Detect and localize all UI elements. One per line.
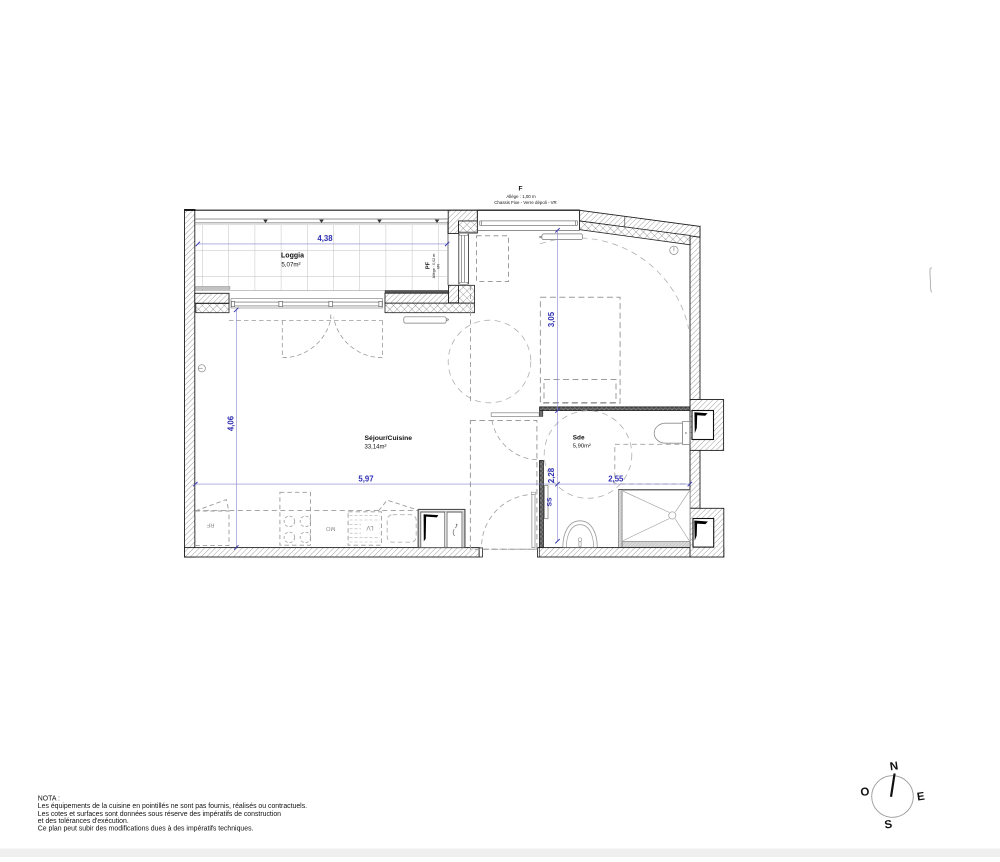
svg-text:3,05: 3,05 xyxy=(547,311,556,327)
svg-text:Sde: Sde xyxy=(573,435,585,442)
svg-text:VR: VR xyxy=(436,264,440,269)
svg-text:2,28: 2,28 xyxy=(547,467,556,483)
svg-text:MO: MO xyxy=(326,525,336,531)
svg-text:Allège : 1,00 m: Allège : 1,00 m xyxy=(506,194,536,199)
svg-text:Ce plan peut subir des modific: Ce plan peut subir des modifications due… xyxy=(38,826,254,833)
svg-text:RF: RF xyxy=(206,522,214,528)
svg-text:NOTA :: NOTA : xyxy=(38,795,60,802)
svg-text:O: O xyxy=(860,786,871,799)
svg-text:Séjour/Cuisine: Séjour/Cuisine xyxy=(365,435,413,442)
svg-text:et des tolérances d'exécution.: et des tolérances d'exécution. xyxy=(38,818,129,825)
svg-text:F: F xyxy=(518,186,522,193)
svg-text:SS: SS xyxy=(547,497,554,507)
svg-text:N: N xyxy=(889,760,899,773)
svg-text:4,38: 4,38 xyxy=(317,234,333,243)
svg-text:PF: PF xyxy=(426,261,432,269)
svg-text:Chassis Fixe - Verre dépoli -: Chassis Fixe - Verre dépoli - VR xyxy=(494,200,556,205)
svg-text:LV: LV xyxy=(366,524,374,531)
svg-text:5,97: 5,97 xyxy=(358,474,373,483)
svg-text:4,06: 4,06 xyxy=(227,415,236,431)
svg-text:Loggia: Loggia xyxy=(281,253,304,260)
svg-text:2,55: 2,55 xyxy=(608,475,624,484)
svg-text:33,14m²: 33,14m² xyxy=(365,445,387,451)
svg-text:5,07m²: 5,07m² xyxy=(281,262,300,269)
svg-text:5,90m²: 5,90m² xyxy=(573,444,591,450)
svg-text:Les cotes et surfaces sont don: Les cotes et surfaces sont données sous … xyxy=(38,811,281,818)
svg-text:Les équipements de la cuisine: Les équipements de la cuisine en pointil… xyxy=(38,803,307,810)
